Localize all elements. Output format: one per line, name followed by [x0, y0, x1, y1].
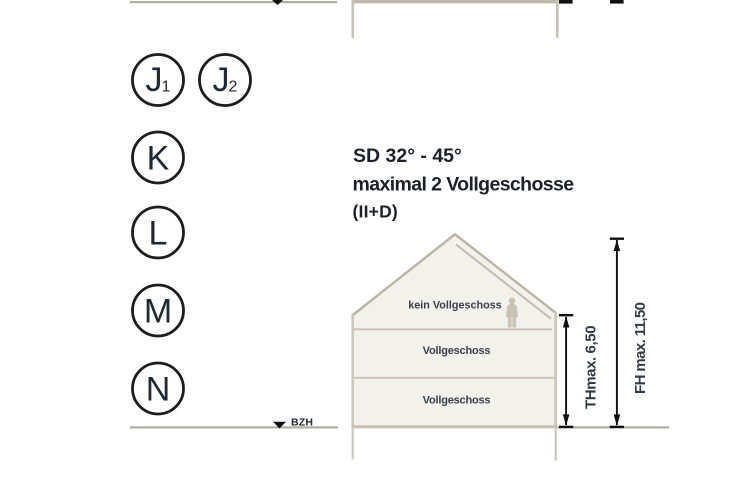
- svg-text:BZH: BZH: [291, 417, 313, 429]
- svg-text:J: J: [213, 61, 230, 99]
- svg-text:(II+D): (II+D): [353, 202, 398, 222]
- svg-text:2: 2: [229, 79, 238, 96]
- svg-text:N: N: [146, 371, 171, 409]
- svg-text:L: L: [149, 215, 168, 253]
- svg-text:K: K: [147, 140, 170, 178]
- svg-text:maximal 2 Vollgeschosse: maximal 2 Vollgeschosse: [353, 174, 575, 196]
- svg-text:THmax. 6,50: THmax. 6,50: [583, 326, 600, 409]
- svg-text:Vollgeschoss: Vollgeschoss: [423, 345, 491, 357]
- svg-text:FH max. 11,50: FH max. 11,50: [632, 302, 649, 394]
- svg-text:J: J: [146, 61, 163, 99]
- svg-text:SD 32° - 45°: SD 32° - 45°: [353, 145, 462, 167]
- svg-text:M: M: [144, 293, 172, 331]
- svg-text:Vollgeschoss: Vollgeschoss: [423, 395, 491, 407]
- svg-text:kein Vollgeschoss: kein Vollgeschoss: [408, 300, 501, 312]
- svg-text:1: 1: [162, 79, 171, 96]
